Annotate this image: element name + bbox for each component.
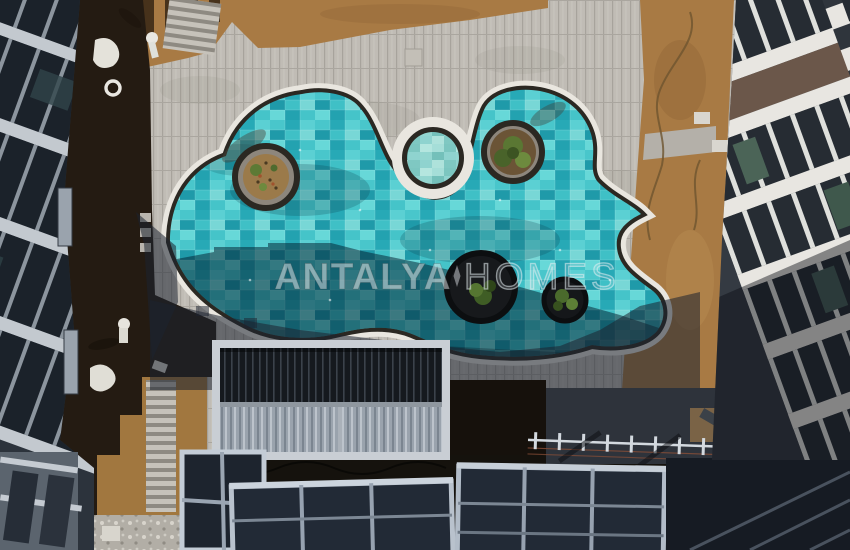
planter-island-right [484, 123, 542, 181]
left-building-annex [0, 452, 82, 550]
walkway-striped-bottom [146, 380, 176, 512]
balcony [64, 330, 78, 394]
pergola-louvers [220, 348, 442, 406]
aerial-photo-scene: ANTALYA HOMES [0, 0, 850, 550]
watermark-primary-text: ANTALYA [274, 256, 452, 297]
utility-box [712, 140, 728, 152]
watermark-secondary-text: HOMES [464, 256, 620, 297]
walkway-striped-top [163, 0, 222, 55]
canopy-bottom-right [666, 458, 850, 550]
manhole-cover [405, 49, 422, 66]
canopy-right [455, 462, 667, 550]
kiddie-pool [398, 123, 468, 193]
planter-island-left [235, 146, 297, 208]
watermark: ANTALYA HOMES [274, 256, 619, 297]
balcony [58, 188, 72, 246]
canopy-left [229, 477, 455, 550]
utility-box [694, 112, 710, 124]
canopy-glass [457, 466, 665, 550]
aerial-photo-complex: ANTALYA HOMES [0, 0, 850, 550]
white-box [102, 526, 120, 541]
pergola-panels [220, 407, 442, 452]
